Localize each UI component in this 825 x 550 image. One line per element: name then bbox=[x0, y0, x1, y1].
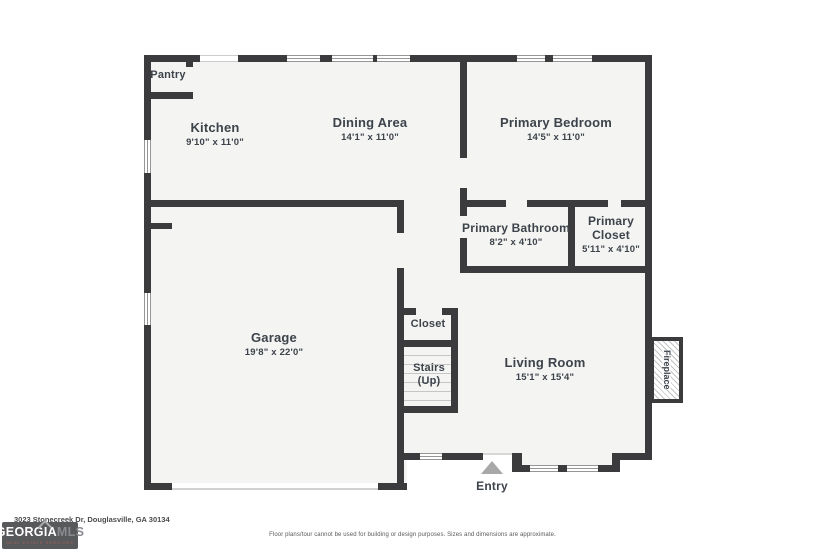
room-label-stairs: Stairs (Up) bbox=[399, 362, 459, 387]
door-opening bbox=[608, 200, 621, 207]
window bbox=[332, 55, 373, 62]
door-opening bbox=[397, 233, 404, 268]
room-label-pantry: Pantry bbox=[150, 69, 185, 82]
room-label-closet: Closet bbox=[398, 318, 458, 331]
room-label-living-room: Living Room 15'1" x 15'4" bbox=[465, 356, 625, 384]
window bbox=[420, 453, 442, 460]
entry-arrow-icon bbox=[481, 461, 503, 474]
wall bbox=[612, 453, 652, 460]
room-name: Primary Closet bbox=[580, 215, 642, 243]
room-name: Stairs bbox=[399, 362, 459, 375]
window bbox=[144, 293, 151, 325]
logo-tagline: REAL ESTATE SERVICES bbox=[6, 541, 74, 545]
entry-label: Entry bbox=[476, 480, 508, 494]
floor-plan-page: Fireplace Pantry Kitchen 9'10" x 11'0" D… bbox=[0, 0, 825, 550]
wall bbox=[144, 200, 404, 207]
window bbox=[287, 55, 320, 62]
room-label-primary-bedroom: Primary Bedroom 14'5" x 11'0" bbox=[471, 116, 641, 144]
door-opening bbox=[186, 67, 193, 92]
room-dims: 14'1" x 11'0" bbox=[290, 133, 450, 144]
room-dims: 19'8" x 22'0" bbox=[194, 348, 354, 359]
room-label-garage: Garage 19'8" x 22'0" bbox=[194, 331, 354, 359]
wall bbox=[401, 453, 483, 460]
room-dims: 15'1" x 15'4" bbox=[465, 373, 625, 384]
wall bbox=[401, 340, 458, 347]
room-label-primary-bathroom: Primary Bathroom 8'2" x 4'10" bbox=[456, 222, 576, 249]
room-label-dining: Dining Area 14'1" x 11'0" bbox=[290, 116, 450, 144]
fireplace: Fireplace bbox=[650, 337, 683, 403]
wall bbox=[151, 223, 172, 229]
garage-door-opening bbox=[172, 483, 378, 490]
logo-secondary-text: MLS bbox=[57, 526, 84, 539]
room-name: Pantry bbox=[150, 69, 185, 82]
room-label-primary-closet: Primary Closet 5'11" x 4'10" bbox=[580, 215, 642, 256]
window bbox=[553, 55, 592, 62]
window bbox=[377, 55, 410, 62]
room-name: Kitchen bbox=[135, 121, 295, 136]
wall bbox=[401, 406, 458, 413]
window bbox=[517, 55, 545, 62]
room-dims: 14'5" x 11'0" bbox=[471, 133, 641, 144]
room-label-kitchen: Kitchen 9'10" x 11'0" bbox=[135, 121, 295, 149]
disclaimer-text: Floor plans/tour cannot be used for buil… bbox=[0, 532, 825, 538]
room-name: Entry bbox=[476, 480, 508, 494]
room-name: Living Room bbox=[465, 356, 625, 371]
room-name: Primary Bedroom bbox=[471, 116, 641, 131]
entry-door-opening bbox=[483, 453, 512, 460]
window bbox=[530, 465, 558, 472]
room-name: Garage bbox=[194, 331, 354, 346]
door-opening bbox=[416, 308, 442, 315]
fireplace-label: Fireplace bbox=[662, 350, 671, 390]
room-name: Closet bbox=[398, 318, 458, 331]
room-dims: 9'10" x 11'0" bbox=[135, 138, 295, 149]
wall bbox=[512, 465, 620, 472]
room-name: Primary Bathroom bbox=[456, 222, 576, 236]
window bbox=[567, 465, 598, 472]
wall bbox=[460, 266, 652, 273]
room-name: Dining Area bbox=[290, 116, 450, 131]
room-sub: (Up) bbox=[399, 375, 459, 388]
logo-wordmark: GEORGIA MLS bbox=[0, 526, 84, 539]
room-dims: 8'2" x 4'10" bbox=[456, 238, 576, 249]
door-opening bbox=[460, 158, 467, 188]
window bbox=[200, 55, 238, 62]
georgia-mls-logo: GEORGIA MLS REAL ESTATE SERVICES bbox=[2, 522, 78, 549]
room-dims: 5'11" x 4'10" bbox=[580, 245, 642, 256]
door-opening bbox=[506, 200, 527, 207]
wall bbox=[460, 200, 652, 207]
